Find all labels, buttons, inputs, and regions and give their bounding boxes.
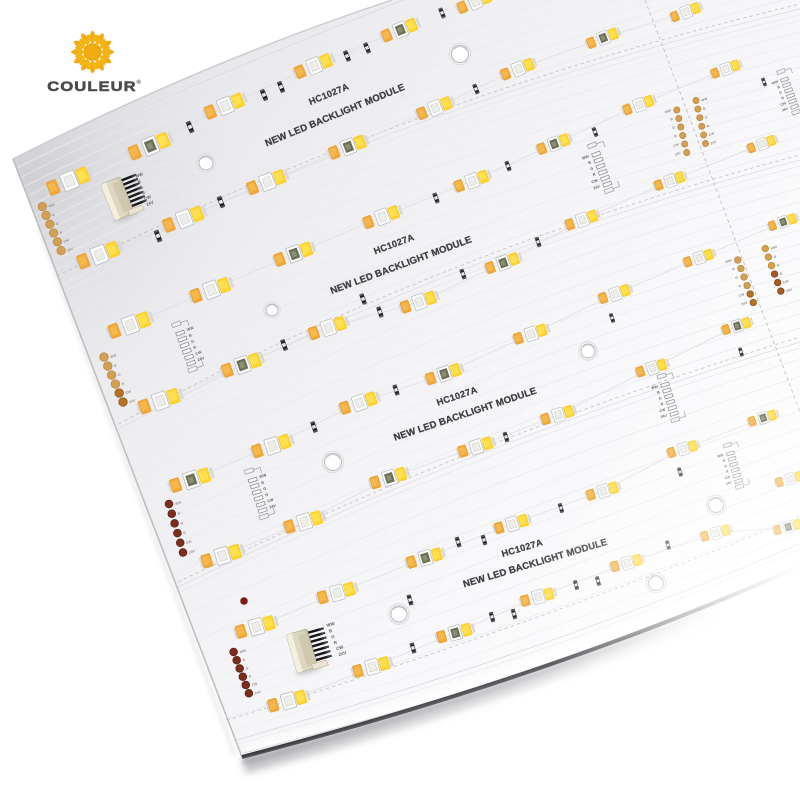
svg-text:®: ®: [137, 79, 142, 86]
svg-text:COULEUR: COULEUR: [47, 79, 136, 94]
